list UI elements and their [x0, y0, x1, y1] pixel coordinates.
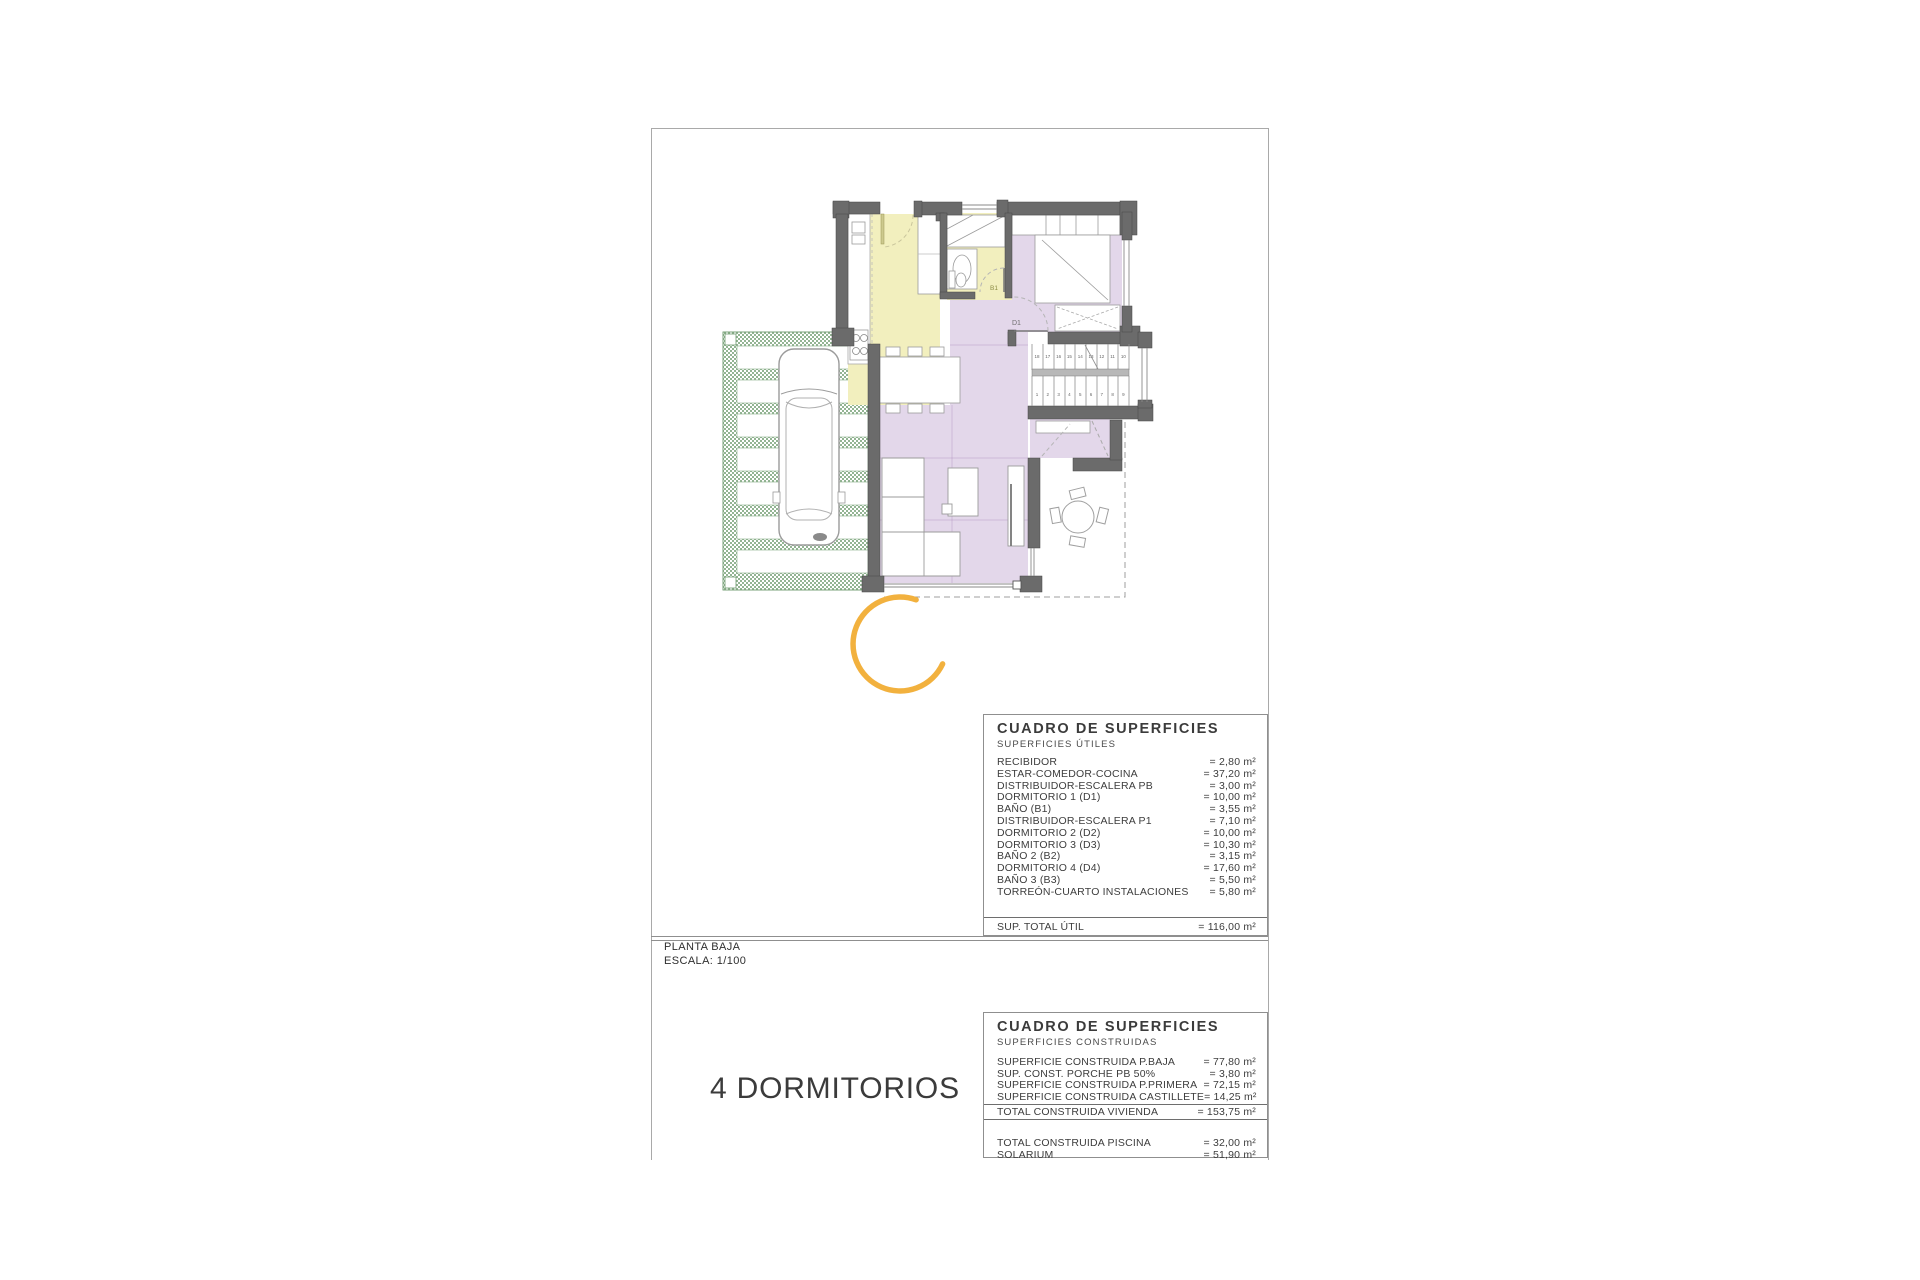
stair-step-number: 17 — [1045, 354, 1051, 359]
dining-chair — [886, 347, 900, 356]
row-value: = 5,50 m² — [1210, 875, 1256, 887]
table-superficies-construidas: CUADRO DE SUPERFICIES SUPERFICIES CONSTR… — [983, 1012, 1268, 1158]
wall-pilaster — [1020, 576, 1042, 592]
corridor-floor — [950, 300, 1012, 334]
drawing-canvas: 181716151413121110 123456789 B1 D1 CUADR… — [0, 0, 1920, 1280]
stair-step-number: 7 — [1101, 392, 1104, 397]
bed — [1035, 235, 1110, 303]
table-row: BAÑO 3 (B3)= 5,50 m² — [984, 875, 1267, 887]
dining-chair — [886, 404, 900, 413]
dining-table — [878, 357, 960, 403]
entry-door-leaf — [881, 214, 884, 244]
table-row: TOTAL CONSTRUIDA PISCINA= 32,00 m² — [984, 1138, 1267, 1150]
table-title: CUADRO DE SUPERFICIES — [997, 721, 1219, 737]
stair-step-number: 12 — [1099, 354, 1105, 359]
stair-step-number: 2 — [1047, 392, 1050, 397]
coffee-table — [948, 468, 978, 516]
dining-chair — [908, 404, 922, 413]
row-label: SUPERFICIE CONSTRUIDA P.BAJA — [997, 1057, 1175, 1069]
row-value: = 5,80 m² — [1210, 887, 1256, 899]
row-label: SUPERFICIE CONSTRUIDA CASTILLETE — [997, 1092, 1204, 1104]
wall-pilaster — [862, 576, 884, 592]
stair-step-number: 8 — [1111, 392, 1114, 397]
orange-arc-annotation — [853, 597, 943, 691]
row-value: = 37,20 m² — [1204, 769, 1257, 781]
pergola-post — [725, 334, 736, 345]
table-row: DORMITORIO 2 (D2)= 10,00 m² — [984, 828, 1267, 840]
wall-pilaster — [1008, 330, 1016, 346]
door-jamb — [1013, 581, 1021, 589]
table-subtitle: SUPERFICIES CONSTRUIDAS — [997, 1037, 1157, 1048]
row-value: = 32,00 m² — [1204, 1138, 1257, 1150]
stair-step-number: 15 — [1067, 354, 1073, 359]
table-row: TORREÓN-CUARTO INSTALACIONES= 5,80 m² — [984, 887, 1267, 899]
bedroom-wardrobe — [1012, 215, 1120, 235]
table-rows: SUPERFICIE CONSTRUIDA P.BAJA= 77,80 m²SU… — [984, 1057, 1267, 1104]
wall-pilaster — [914, 201, 922, 217]
toilet — [949, 271, 955, 288]
terrace-chair — [1096, 507, 1108, 524]
stair-step-number: 6 — [1090, 392, 1093, 397]
stair-step-number: 1 — [1036, 392, 1039, 397]
toilet — [956, 273, 966, 287]
row-value: = 51,90 m² — [1204, 1150, 1257, 1162]
dining-set — [878, 347, 960, 413]
floor-plan: 181716151413121110 123456789 B1 D1 — [0, 0, 1920, 1280]
stairs: 181716151413121110 123456789 — [1032, 344, 1129, 406]
plan-scale: ESCALA: 1/100 — [664, 955, 746, 967]
table-superficies-utiles: CUADRO DE SUPERFICIES SUPERFICIES ÚTILES… — [983, 714, 1268, 936]
table-total-row: SUP. TOTAL ÚTIL = 116,00 m² — [984, 917, 1267, 935]
stair-step-number: 16 — [1056, 354, 1062, 359]
total-label: TOTAL CONSTRUIDA VIVIENDA — [997, 1106, 1158, 1118]
stair-step-number: 10 — [1121, 354, 1127, 359]
table-rows: RECIBIDOR= 2,80 m²ESTAR-COMEDOR-COCINA= … — [984, 757, 1267, 899]
row-label: ESTAR-COMEDOR-COCINA — [997, 769, 1138, 781]
table-total-row: TOTAL CONSTRUIDA VIVIENDA = 153,75 m² — [984, 1104, 1267, 1120]
plan-name: PLANTA BAJA — [664, 941, 740, 953]
table-row: SUPERFICIE CONSTRUIDA P.BAJA= 77,80 m² — [984, 1057, 1267, 1069]
stair-step-number: 18 — [1034, 354, 1040, 359]
terrace-table — [1062, 501, 1094, 533]
total-label: SUP. TOTAL ÚTIL — [997, 921, 1084, 933]
stair-upper-numbers: 181716151413121110 — [1034, 354, 1126, 359]
terrace-chair — [1050, 507, 1061, 523]
row-label: BAÑO 3 (B3) — [997, 875, 1060, 887]
row-value: = 7,10 m² — [1210, 816, 1256, 828]
bath-door-label: B1 — [990, 285, 998, 292]
kitchen-sink — [852, 235, 865, 244]
kitchen-sink — [852, 222, 865, 233]
stair-step-number: 5 — [1079, 392, 1082, 397]
table-row: ESTAR-COMEDOR-COCINA= 37,20 m² — [984, 769, 1267, 781]
stair-step-number: 9 — [1122, 392, 1125, 397]
dining-chair — [930, 404, 944, 413]
steering-wheel — [813, 533, 827, 541]
row-label: TOTAL CONSTRUIDA PISCINA — [997, 1138, 1151, 1150]
dining-chair — [930, 347, 944, 356]
row-value: = 14,25 m² — [1204, 1092, 1257, 1104]
stair-step-number: 3 — [1057, 392, 1060, 397]
table-row: SOLARIUM= 51,90 m² — [984, 1150, 1267, 1162]
side-table — [942, 504, 952, 514]
car — [773, 349, 845, 545]
stair-lower-numbers: 123456789 — [1036, 392, 1125, 397]
total-value: = 116,00 m² — [1198, 921, 1256, 933]
stair-step-number: 13 — [1088, 354, 1094, 359]
terrace-chair — [1069, 536, 1085, 547]
table-row: DISTRIBUIDOR-ESCALERA P1= 7,10 m² — [984, 816, 1267, 828]
row-label: DISTRIBUIDOR-ESCALERA P1 — [997, 816, 1152, 828]
stair-handrail — [1032, 369, 1129, 376]
closet-cabinet — [1036, 421, 1090, 433]
row-label: DORMITORIO 2 (D2) — [997, 828, 1101, 840]
pergola-post — [725, 577, 736, 588]
table-title: CUADRO DE SUPERFICIES — [997, 1019, 1219, 1035]
stair-step-number: 11 — [1110, 354, 1115, 359]
stair-step-number: 4 — [1068, 392, 1071, 397]
hall-floor — [950, 332, 1028, 406]
table-subtitle: SUPERFICIES ÚTILES — [997, 739, 1116, 750]
bedroom-door-label: D1 — [1012, 320, 1021, 327]
terrace-chair — [1069, 487, 1086, 499]
total-value: = 153,75 m² — [1197, 1106, 1256, 1118]
stair-step-number: 14 — [1078, 354, 1084, 359]
row-value: = 10,00 m² — [1204, 828, 1257, 840]
table-extra-rows: TOTAL CONSTRUIDA PISCINA= 32,00 m²SOLARI… — [984, 1138, 1267, 1161]
row-label: TORREÓN-CUARTO INSTALACIONES — [997, 887, 1189, 899]
table-row: SUPERFICIE CONSTRUIDA CASTILLETE= 14,25 … — [984, 1092, 1267, 1104]
bedrooms-summary: 4 DORMITORIOS — [710, 1072, 960, 1106]
car-mirror — [838, 492, 845, 503]
wall-pilaster — [832, 328, 854, 346]
plan-name-block: PLANTA BAJAESCALA: 1/100 — [664, 941, 746, 968]
dining-chair — [908, 347, 922, 356]
car-mirror — [773, 492, 780, 503]
row-label: SOLARIUM — [997, 1150, 1053, 1162]
row-value: = 77,80 m² — [1204, 1057, 1257, 1069]
